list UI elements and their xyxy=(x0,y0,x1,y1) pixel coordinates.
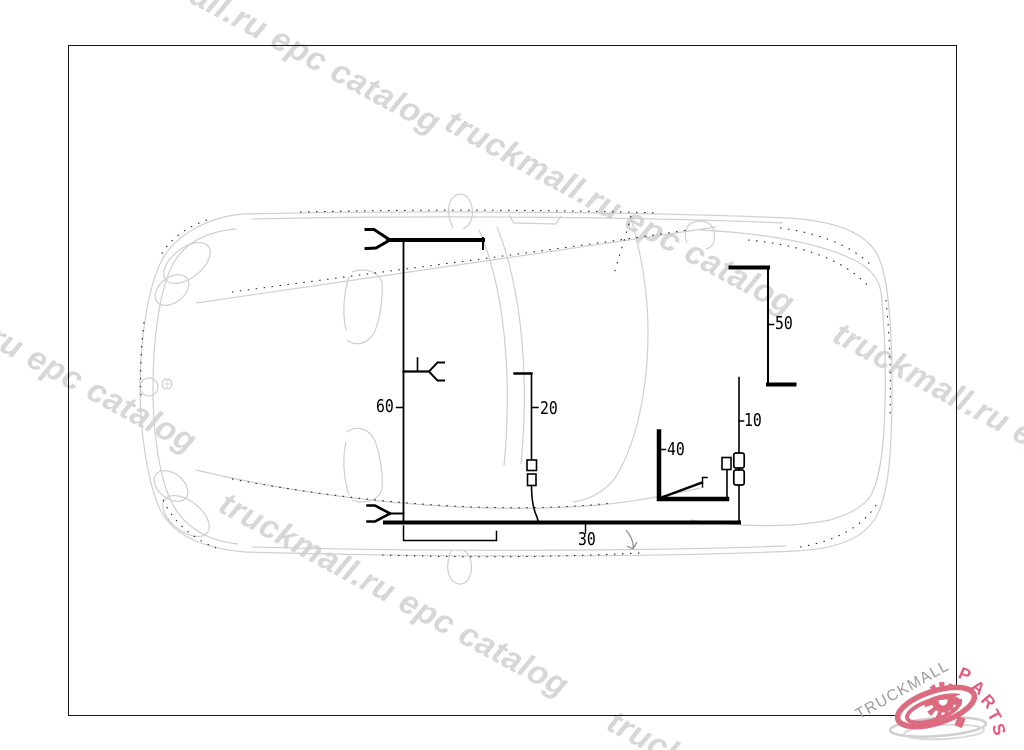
part-callout-20[interactable]: 20 xyxy=(540,400,558,418)
car-wiring-diagram xyxy=(0,0,1024,750)
wiring-harness xyxy=(366,230,795,541)
epc-diagram-page: truckmall.ru epc catalog truckmall.ru ep… xyxy=(0,0,1024,750)
part-callout-10[interactable]: 10 xyxy=(744,412,762,430)
part-callout-30[interactable]: 30 xyxy=(578,531,596,549)
connector-10 xyxy=(734,453,744,468)
connector-20 xyxy=(527,460,537,471)
harness-20 xyxy=(515,374,539,523)
car-body-outline xyxy=(140,194,892,584)
connector-20b xyxy=(528,474,537,486)
harness-30 xyxy=(385,523,739,541)
part-callout-60[interactable]: 60 xyxy=(376,398,394,416)
harness-10 xyxy=(734,378,744,523)
connector-10b xyxy=(734,470,744,485)
part-callout-40[interactable]: 40 xyxy=(667,441,685,459)
part-callout-50[interactable]: 50 xyxy=(775,315,793,333)
connector-40 xyxy=(722,458,731,470)
harness-60 xyxy=(366,230,483,523)
